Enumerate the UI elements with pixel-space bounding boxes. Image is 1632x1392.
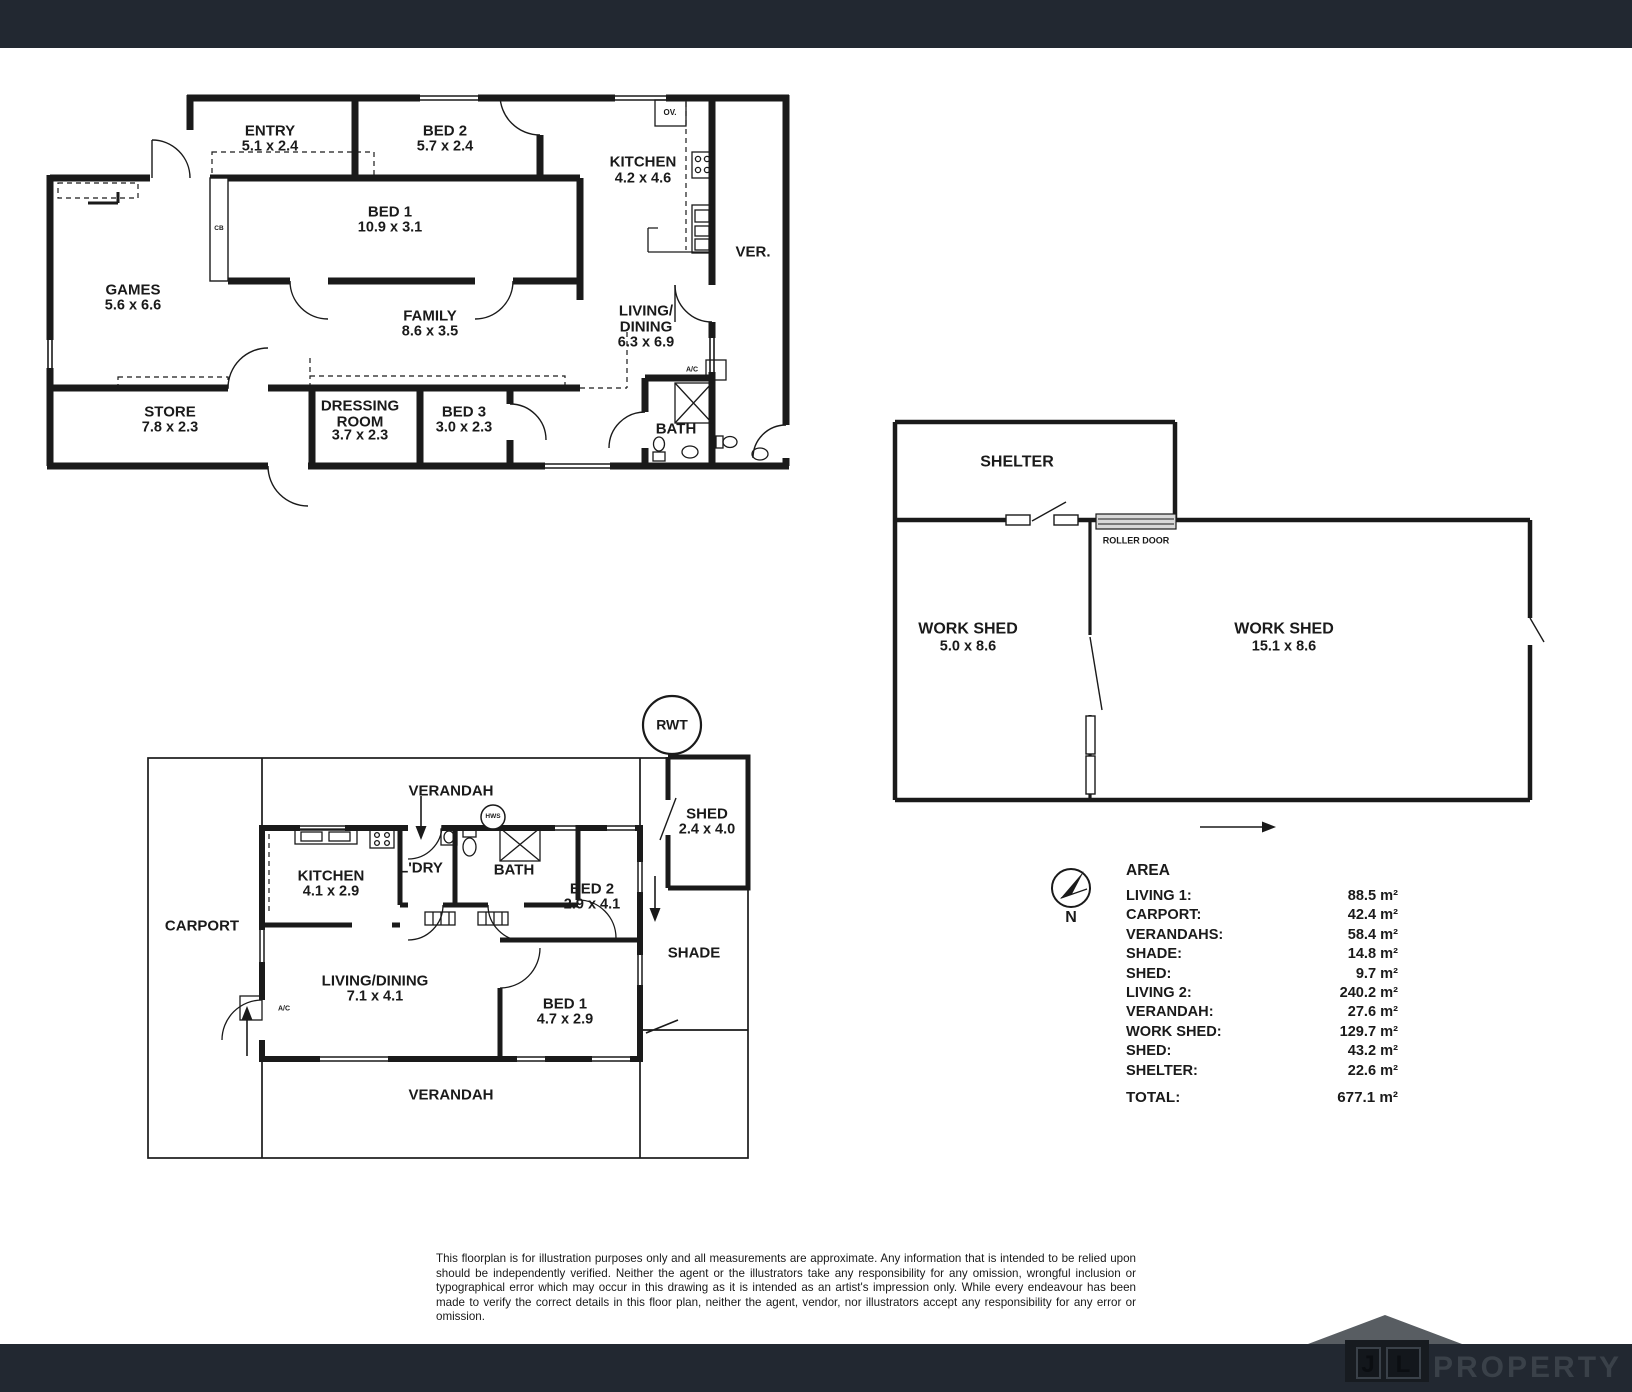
- area-row-label: SHED:: [1126, 965, 1171, 984]
- area-row: VERANDAH: 27.6 m²: [1126, 1003, 1398, 1022]
- aircon-annotation-top: A/C: [686, 367, 698, 374]
- room-dims-bed2-2: 2.9 x 4.1: [564, 897, 620, 913]
- room-label-laundry: L'DRY: [399, 860, 443, 876]
- area-total-row: TOTAL: 677.1 m²: [1126, 1089, 1398, 1106]
- room-label-dressing-room: DRESSING ROOM: [321, 399, 399, 430]
- area-row: SHADE: 14.8 m²: [1126, 945, 1398, 964]
- rainwater-tank-annotation: RWT: [656, 717, 688, 733]
- room-label-bed2-2: BED 2: [570, 881, 614, 897]
- area-row-value: 43.2 m²: [1348, 1042, 1398, 1061]
- area-row-label: SHADE:: [1126, 945, 1182, 964]
- logo-wordmark: PROPERTY: [1433, 1351, 1622, 1384]
- room-dims-work-shed-1: 5.0 x 8.6: [940, 639, 996, 655]
- room-label-kitchen: KITCHEN: [610, 154, 677, 170]
- area-row-value: 58.4 m²: [1348, 926, 1398, 945]
- room-label-verandah-bottom: VERANDAH: [408, 1087, 493, 1103]
- area-row-label: SHED:: [1126, 1042, 1171, 1061]
- area-row: CARPORT: 42.4 m²: [1126, 906, 1398, 925]
- disclaimer-text: This floorplan is for illustration purpo…: [436, 1252, 1136, 1325]
- room-dims-kitchen-2: 4.1 x 2.9: [303, 884, 359, 900]
- room-dims-bed1: 10.9 x 3.1: [358, 220, 423, 236]
- room-label-shelter: SHELTER: [980, 454, 1053, 470]
- roller-door-annotation: ROLLER DOOR: [1103, 537, 1170, 546]
- area-total-value: 677.1 m²: [1337, 1089, 1398, 1106]
- room-label-bed1-2: BED 1: [543, 996, 587, 1012]
- room-label-store: STORE: [144, 404, 195, 420]
- room-label-bed3: BED 3: [442, 404, 486, 420]
- cupboard-annotation: CB: [214, 226, 223, 233]
- logo-initials: J L: [1357, 1348, 1420, 1378]
- room-dims-living-dining: 6.3 x 6.9: [618, 335, 674, 351]
- area-row: VERANDAHS: 58.4 m²: [1126, 926, 1398, 945]
- room-label-bath: BATH: [656, 421, 697, 437]
- area-row: WORK SHED: 129.7 m²: [1126, 1023, 1398, 1042]
- room-dims-work-shed-2: 15.1 x 8.6: [1252, 639, 1317, 655]
- area-row-label: CARPORT:: [1126, 906, 1201, 925]
- area-row: LIVING 1: 88.5 m²: [1126, 887, 1398, 906]
- room-label-work-shed-1: WORK SHED: [918, 621, 1018, 637]
- area-row-value: 42.4 m²: [1348, 906, 1398, 925]
- room-label-bed2: BED 2: [423, 123, 467, 139]
- area-total-label: TOTAL:: [1126, 1089, 1180, 1106]
- room-dims-dressing-room: 3.7 x 2.3: [332, 428, 388, 444]
- area-row-value: 14.8 m²: [1348, 945, 1398, 964]
- room-label-shade: SHADE: [668, 945, 721, 961]
- room-label-bath-2: BATH: [494, 862, 535, 878]
- compass-icon: [1052, 869, 1090, 907]
- logo-initial-l: L: [1396, 1351, 1411, 1378]
- area-row-label: LIVING 1:: [1126, 887, 1192, 906]
- room-label-family: FAMILY: [403, 308, 457, 324]
- logo-initial-j: J: [1361, 1351, 1374, 1378]
- room-dims-family: 8.6 x 3.5: [402, 324, 458, 340]
- hot-water-annotation: HWS: [485, 814, 500, 821]
- aircon-annotation-bottom: A/C: [278, 1006, 290, 1013]
- room-label-verandah-abbr: VER.: [735, 244, 770, 260]
- room-dims-kitchen: 4.2 x 4.6: [615, 171, 671, 187]
- area-row-label: SHELTER:: [1126, 1062, 1198, 1081]
- area-row: LIVING 2: 240.2 m²: [1126, 984, 1398, 1003]
- area-row-value: 129.7 m²: [1340, 1023, 1398, 1042]
- room-dims-bed1-2: 4.7 x 2.9: [537, 1012, 593, 1028]
- area-row: SHED: 43.2 m²: [1126, 1042, 1398, 1061]
- area-row-value: 22.6 m²: [1348, 1062, 1398, 1081]
- compass-north-label: N: [1065, 909, 1077, 927]
- room-label-living-dining: LIVING/ DINING: [619, 304, 673, 335]
- area-row-value: 88.5 m²: [1348, 887, 1398, 906]
- room-dims-bed2: 5.7 x 2.4: [417, 139, 473, 155]
- floorplan-page: ENTRY 5.1 x 2.4 BED 2 5.7 x 2.4 KITCHEN …: [0, 0, 1632, 1392]
- room-label-entry: ENTRY: [245, 123, 295, 139]
- area-table-title: AREA: [1126, 862, 1398, 880]
- area-row-value: 27.6 m²: [1348, 1003, 1398, 1022]
- area-row-value: 9.7 m²: [1356, 965, 1398, 984]
- area-row-label: WORK SHED:: [1126, 1023, 1222, 1042]
- area-row: SHED: 9.7 m²: [1126, 965, 1398, 984]
- room-label-shed-small: SHED: [686, 806, 728, 822]
- floorplan-linework: [0, 0, 1632, 1392]
- room-label-kitchen-2: KITCHEN: [298, 868, 365, 884]
- area-row-label: VERANDAHS:: [1126, 926, 1223, 945]
- room-label-bed1: BED 1: [368, 204, 412, 220]
- room-dims-shed-small: 2.4 x 4.0: [679, 822, 735, 838]
- area-row-value: 240.2 m²: [1340, 984, 1398, 1003]
- room-label-carport: CARPORT: [165, 918, 239, 934]
- area-row: SHELTER: 22.6 m²: [1126, 1062, 1398, 1081]
- room-dims-living-dining-2: 7.1 x 4.1: [347, 989, 403, 1005]
- agency-logo: J L PROPERTY: [1290, 1300, 1632, 1392]
- room-dims-entry: 5.1 x 2.4: [242, 139, 298, 155]
- room-label-games: GAMES: [105, 282, 160, 298]
- area-table: AREA LIVING 1: 88.5 m² CARPORT: 42.4 m² …: [1126, 862, 1398, 1106]
- room-dims-games: 5.6 x 6.6: [105, 298, 161, 314]
- room-dims-store: 7.8 x 2.3: [142, 420, 198, 436]
- area-row-label: VERANDAH:: [1126, 1003, 1214, 1022]
- room-label-work-shed-2: WORK SHED: [1234, 621, 1334, 637]
- area-row-label: LIVING 2:: [1126, 984, 1192, 1003]
- room-label-verandah-top: VERANDAH: [408, 783, 493, 799]
- room-dims-bed3: 3.0 x 2.3: [436, 420, 492, 436]
- room-label-living-dining-2: LIVING/DINING: [322, 973, 429, 989]
- oven-annotation: OV.: [663, 109, 676, 117]
